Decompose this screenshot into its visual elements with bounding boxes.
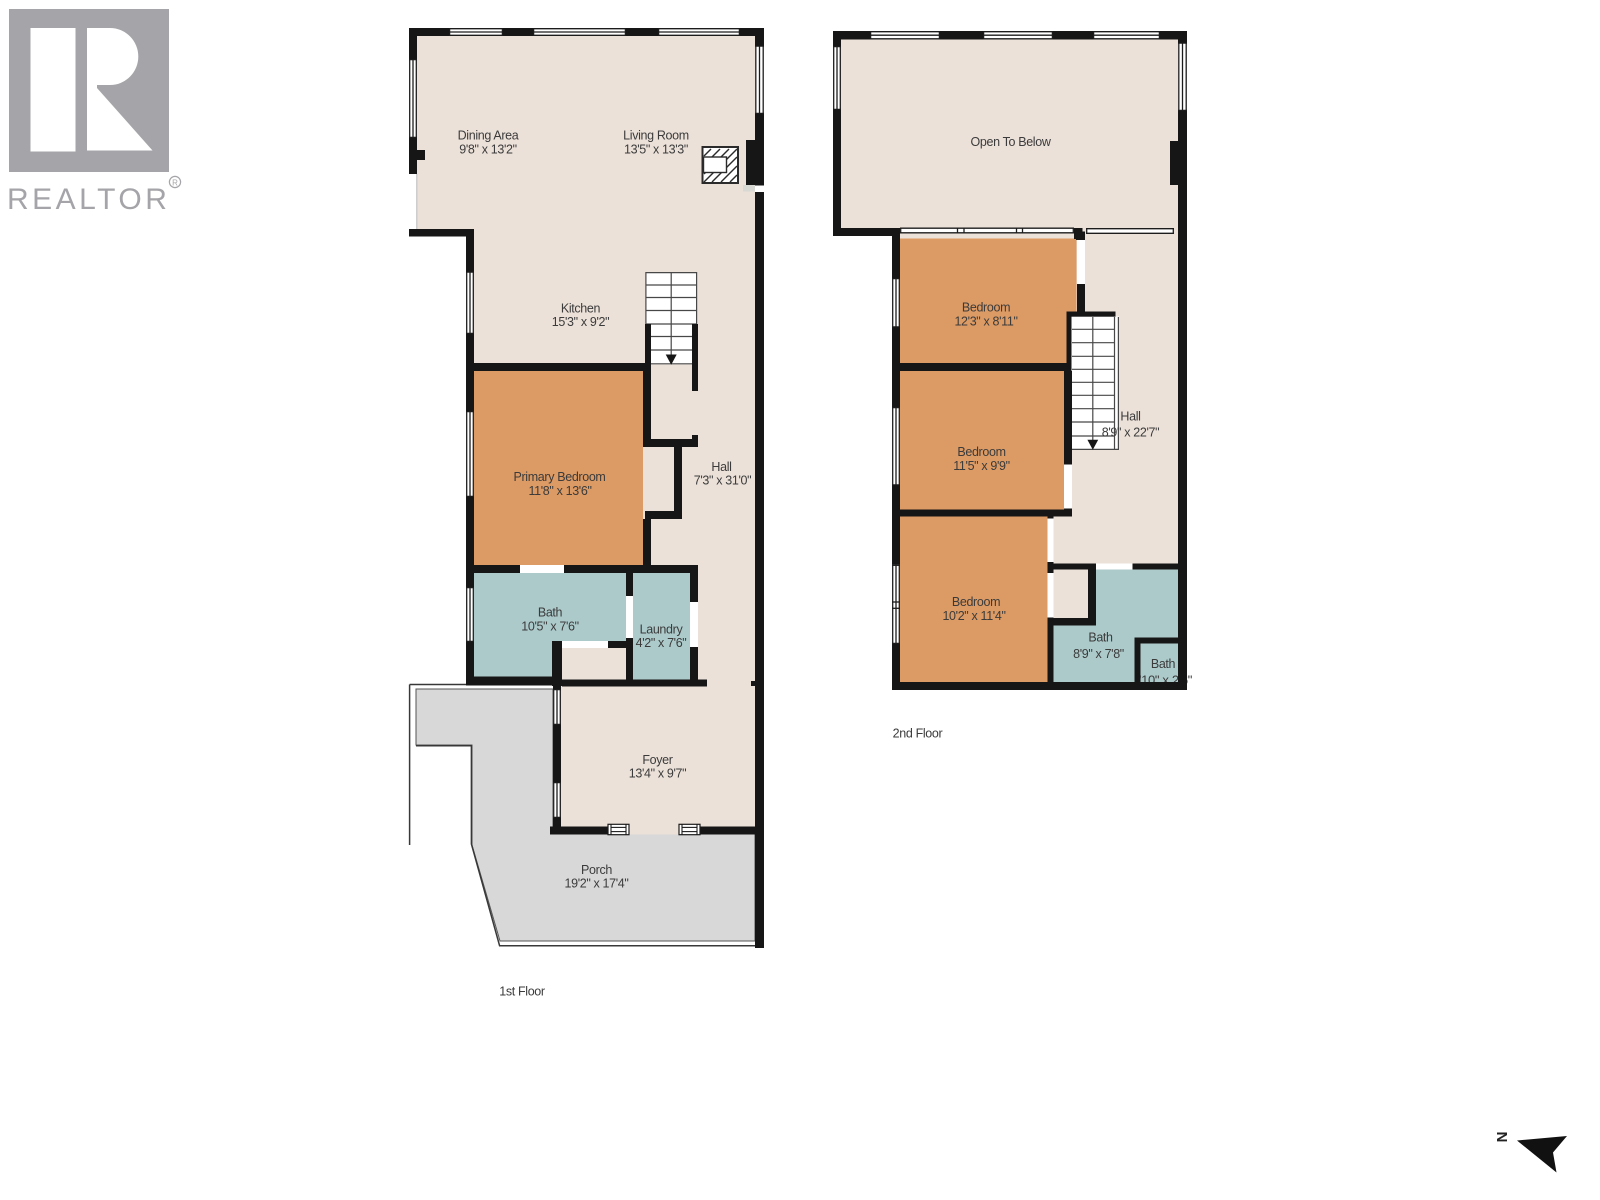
- svg-text:Living Room: Living Room: [623, 129, 689, 143]
- svg-text:Bath: Bath: [538, 606, 563, 620]
- svg-text:15'3" x 9'2": 15'3" x 9'2": [552, 315, 609, 329]
- svg-text:11'5" x 9'9": 11'5" x 9'9": [953, 459, 1009, 473]
- svg-text:Hall: Hall: [1120, 410, 1140, 424]
- svg-text:Kitchen: Kitchen: [561, 302, 601, 316]
- svg-text:12'3" x 8'11": 12'3" x 8'11": [954, 315, 1017, 329]
- svg-text:Open To Below: Open To Below: [971, 135, 1052, 149]
- svg-text:REALTOR: REALTOR: [7, 183, 170, 216]
- svg-text:11'8" x 13'6": 11'8" x 13'6": [528, 484, 591, 498]
- svg-text:8'9" x 22'7": 8'9" x 22'7": [1102, 426, 1159, 440]
- svg-text:Laundry: Laundry: [640, 623, 684, 637]
- svg-text:N: N: [1494, 1132, 1511, 1143]
- svg-text:Bedroom: Bedroom: [957, 445, 1005, 459]
- svg-text:7'3" x 31'0": 7'3" x 31'0": [694, 474, 751, 488]
- svg-text:Dining Area: Dining Area: [458, 129, 519, 143]
- svg-text:1st Floor: 1st Floor: [499, 985, 545, 999]
- svg-text:Bedroom: Bedroom: [952, 595, 1000, 609]
- svg-text:9'8" x 13'2": 9'8" x 13'2": [459, 143, 516, 157]
- svg-text:8'9" x 7'8": 8'9" x 7'8": [1073, 647, 1124, 661]
- svg-text:Bath: Bath: [1088, 631, 1113, 645]
- svg-text:Primary Bedroom: Primary Bedroom: [514, 470, 606, 484]
- svg-text:13'4" x 9'7": 13'4" x 9'7": [629, 767, 686, 781]
- svg-text:Hall: Hall: [711, 460, 731, 474]
- svg-text:Foyer: Foyer: [642, 753, 672, 767]
- svg-text:Bath: Bath: [1151, 657, 1176, 671]
- svg-text:Porch: Porch: [581, 863, 612, 877]
- svg-text:Bedroom: Bedroom: [962, 301, 1010, 315]
- svg-text:10'2" x 11'4": 10'2" x 11'4": [942, 609, 1005, 623]
- svg-text:4'2" x 7'6": 4'2" x 7'6": [636, 636, 687, 650]
- svg-text:10'5" x 7'6": 10'5" x 7'6": [521, 620, 578, 634]
- svg-text:19'2" x 17'4": 19'2" x 17'4": [564, 877, 628, 891]
- svg-text:2nd Floor: 2nd Floor: [893, 727, 943, 741]
- svg-text:13'5" x 13'3": 13'5" x 13'3": [624, 143, 688, 157]
- svg-text:R: R: [172, 179, 178, 188]
